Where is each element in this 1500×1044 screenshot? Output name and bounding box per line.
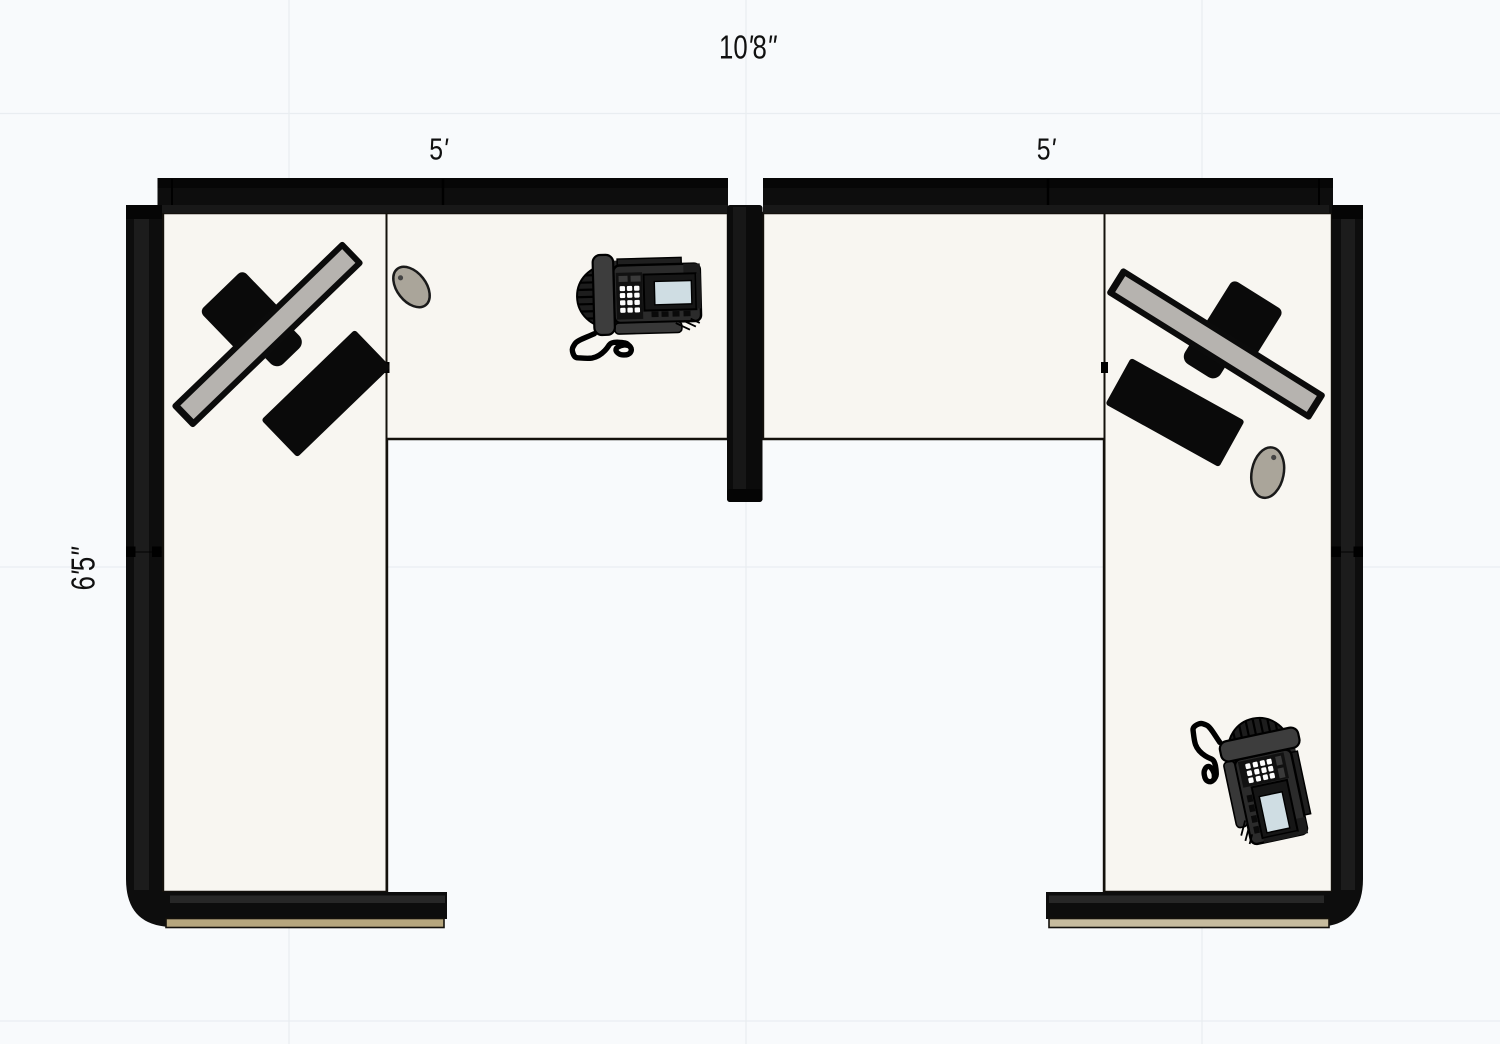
svg-text:5': 5' bbox=[1037, 132, 1057, 166]
svg-text:5': 5' bbox=[429, 132, 449, 166]
svg-text:6'5": 6'5" bbox=[66, 546, 103, 590]
svg-text:10'8": 10'8" bbox=[719, 30, 777, 67]
